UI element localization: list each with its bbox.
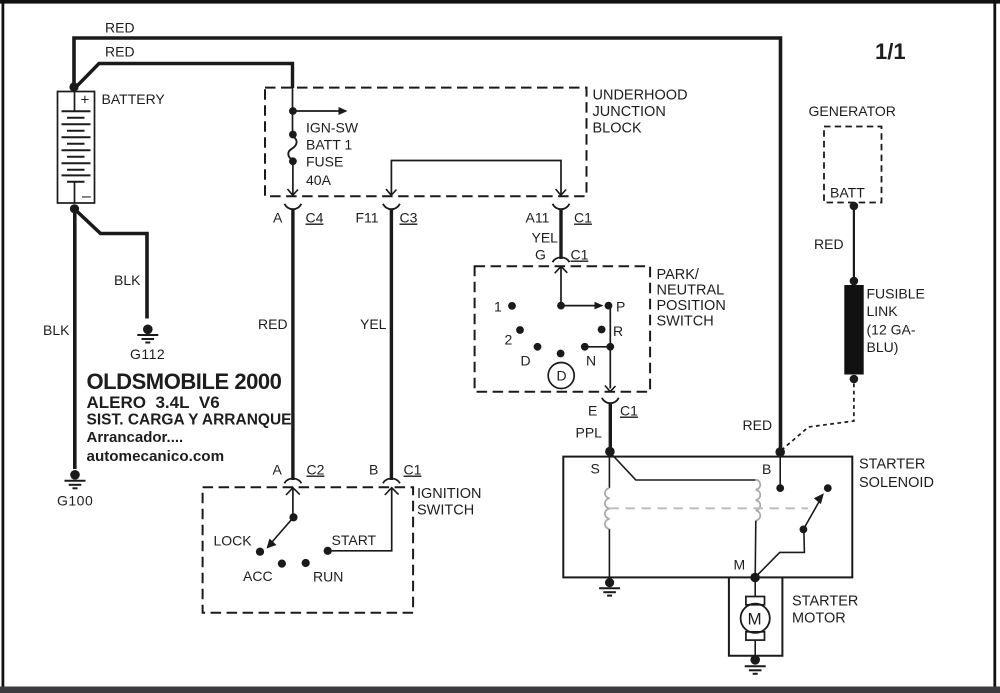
- svg-text:+: +: [81, 92, 90, 109]
- svg-text:2: 2: [505, 332, 513, 348]
- svg-text:RED: RED: [743, 417, 773, 433]
- svg-text:Arrancador....: Arrancador....: [87, 429, 184, 446]
- svg-text:C1: C1: [574, 210, 592, 226]
- svg-text:C1: C1: [571, 247, 589, 263]
- svg-text:G: G: [535, 247, 546, 263]
- svg-text:FUSE: FUSE: [306, 154, 343, 170]
- svg-text:E: E: [588, 403, 597, 419]
- svg-text:BLK: BLK: [43, 322, 70, 338]
- svg-text:D: D: [521, 353, 531, 369]
- svg-text:G112: G112: [130, 346, 165, 362]
- svg-text:START: START: [332, 532, 377, 548]
- svg-text:BLU): BLU): [867, 339, 899, 355]
- svg-text:GENERATOR: GENERATOR: [809, 103, 896, 119]
- svg-text:BATTERY: BATTERY: [102, 91, 166, 107]
- svg-text:UNDERHOOD: UNDERHOOD: [593, 88, 688, 104]
- svg-text:SWITCH: SWITCH: [657, 314, 714, 330]
- svg-text:MOTOR: MOTOR: [792, 611, 846, 627]
- svg-text:B: B: [762, 461, 771, 477]
- svg-text:G100: G100: [57, 493, 93, 509]
- svg-text:BLK: BLK: [114, 272, 141, 288]
- svg-text:SWITCH: SWITCH: [417, 503, 474, 519]
- svg-text:1/1: 1/1: [875, 39, 906, 64]
- svg-text:C1: C1: [620, 403, 638, 419]
- svg-text:OLDSMOBILE 2000: OLDSMOBILE 2000: [87, 369, 282, 394]
- svg-text:ACC: ACC: [243, 568, 273, 584]
- svg-text:IGNITION: IGNITION: [417, 486, 481, 502]
- svg-text:POSITION: POSITION: [657, 298, 726, 314]
- svg-text:R: R: [613, 323, 623, 339]
- svg-text:BLOCK: BLOCK: [593, 121, 642, 137]
- svg-text:FUSIBLE: FUSIBLE: [867, 286, 925, 302]
- svg-text:STARTER: STARTER: [792, 594, 858, 610]
- svg-text:PPL: PPL: [576, 425, 603, 441]
- svg-text:PARK/: PARK/: [657, 267, 700, 283]
- svg-text:RED: RED: [814, 236, 844, 252]
- svg-text:YEL: YEL: [360, 316, 387, 332]
- svg-text:RED: RED: [105, 20, 135, 36]
- svg-text:NEUTRAL: NEUTRAL: [657, 283, 725, 299]
- svg-text:LOCK: LOCK: [214, 533, 253, 549]
- svg-text:C1: C1: [404, 462, 422, 478]
- svg-text:C3: C3: [400, 210, 418, 226]
- svg-text:ALERO 3.4L V6: ALERO 3.4L V6: [87, 393, 220, 412]
- svg-text:SIST. CARGA Y ARRANQUE: SIST. CARGA Y ARRANQUE: [87, 412, 292, 429]
- svg-text:RED: RED: [258, 316, 288, 332]
- svg-text:C2: C2: [307, 462, 325, 478]
- svg-text:JUNCTION: JUNCTION: [593, 104, 666, 120]
- svg-text:YEL: YEL: [532, 230, 559, 246]
- svg-text:40A: 40A: [306, 172, 332, 188]
- svg-text:P: P: [616, 299, 625, 315]
- svg-text:A: A: [273, 210, 283, 226]
- svg-text:SOLENOID: SOLENOID: [859, 475, 934, 491]
- svg-text:B: B: [369, 462, 378, 478]
- svg-text:RUN: RUN: [313, 569, 343, 585]
- svg-text:M: M: [748, 610, 762, 629]
- svg-text:RED: RED: [105, 44, 135, 60]
- svg-text:S: S: [591, 461, 600, 477]
- svg-text:–: –: [82, 188, 91, 205]
- svg-text:(12 GA-: (12 GA-: [867, 322, 916, 338]
- svg-text:BATT: BATT: [830, 185, 865, 201]
- svg-text:STARTER: STARTER: [859, 457, 925, 473]
- svg-text:IGN-SW: IGN-SW: [306, 120, 359, 136]
- svg-text:A11: A11: [526, 210, 550, 226]
- svg-text:D: D: [557, 368, 567, 384]
- svg-text:N: N: [586, 353, 596, 369]
- svg-text:1: 1: [494, 299, 502, 315]
- svg-text:A: A: [273, 462, 283, 478]
- svg-text:automecanico.com: automecanico.com: [87, 448, 225, 465]
- svg-text:F11: F11: [356, 210, 379, 226]
- svg-text:BATT 1: BATT 1: [306, 137, 352, 153]
- svg-text:M: M: [734, 557, 746, 573]
- svg-text:C4: C4: [306, 210, 324, 226]
- svg-text:LINK: LINK: [867, 303, 899, 319]
